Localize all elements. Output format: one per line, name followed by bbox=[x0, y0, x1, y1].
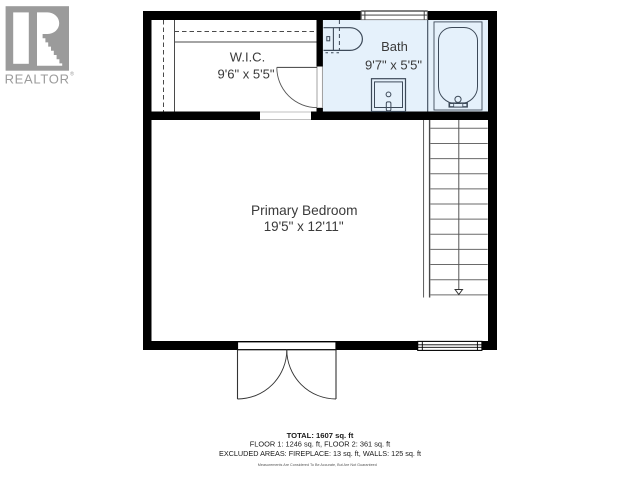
svg-text:19'5" x 12'11": 19'5" x 12'11" bbox=[264, 219, 344, 234]
svg-text:REALTOR: REALTOR bbox=[5, 71, 70, 86]
svg-text:Primary Bedroom: Primary Bedroom bbox=[251, 203, 358, 218]
svg-text:®: ® bbox=[70, 71, 74, 78]
svg-text:FLOOR 1: 1246 sq. ft, FLOOR 2:: FLOOR 1: 1246 sq. ft, FLOOR 2: 361 sq. f… bbox=[250, 440, 390, 449]
svg-text:EXCLUDED AREAS: FIREPLACE: 13: EXCLUDED AREAS: FIREPLACE: 13 sq. ft, WA… bbox=[219, 449, 421, 458]
svg-text:9'6" x 5'5": 9'6" x 5'5" bbox=[217, 67, 274, 82]
svg-text:Measurements Are Considered To: Measurements Are Considered To Be Accura… bbox=[258, 463, 377, 467]
svg-text:Bath: Bath bbox=[381, 39, 408, 54]
svg-text:W.I.C.: W.I.C. bbox=[230, 50, 265, 65]
svg-text:9'7" x 5'5": 9'7" x 5'5" bbox=[365, 58, 422, 73]
